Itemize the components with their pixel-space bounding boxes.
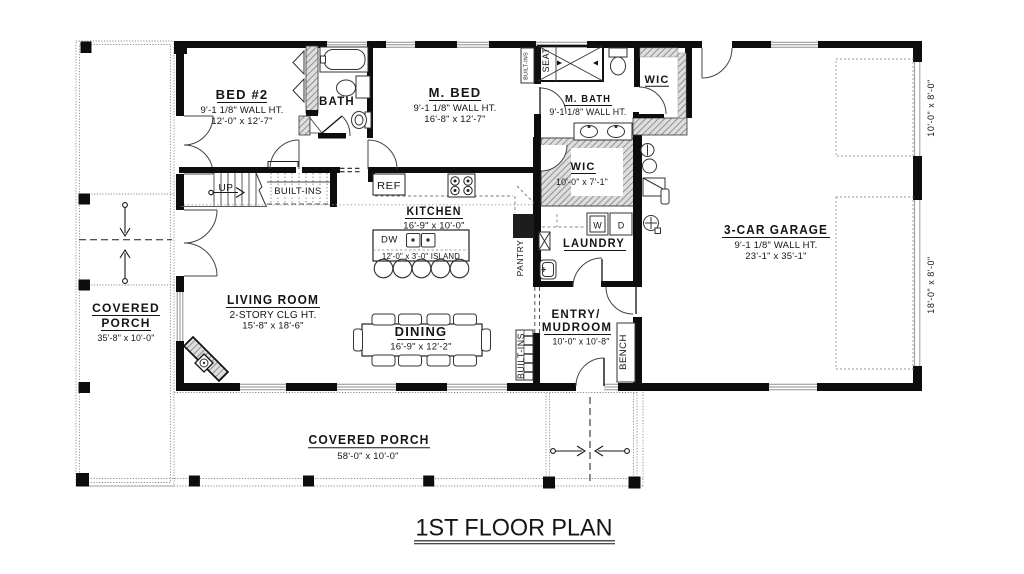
svg-text:18'-0" x 8'-0": 18'-0" x 8'-0" xyxy=(926,256,936,313)
svg-text:BUILT-INS: BUILT-INS xyxy=(274,186,321,197)
svg-text:SEAT: SEAT xyxy=(541,48,551,73)
svg-text:9'-1 1/8" WALL HT.: 9'-1 1/8" WALL HT. xyxy=(200,105,283,116)
svg-text:COVERED PORCH: COVERED PORCH xyxy=(309,432,430,447)
svg-text:KITCHEN: KITCHEN xyxy=(407,204,462,218)
svg-text:DW: DW xyxy=(381,235,398,246)
svg-text:LIVING ROOM: LIVING ROOM xyxy=(227,292,319,307)
svg-text:10'-0" x 8'-0": 10'-0" x 8'-0" xyxy=(926,79,936,136)
svg-text:10'-0" x 7'-1": 10'-0" x 7'-1" xyxy=(556,177,608,187)
svg-text:12'-0" x 3'-0" ISLAND: 12'-0" x 3'-0" ISLAND xyxy=(382,252,460,261)
svg-text:WIC: WIC xyxy=(645,74,670,86)
svg-text:WIC: WIC xyxy=(571,161,596,173)
svg-text:35'-8" x 10'-0": 35'-8" x 10'-0" xyxy=(97,333,154,343)
svg-text:9'-1 1/8" WALL HT.: 9'-1 1/8" WALL HT. xyxy=(549,107,626,117)
svg-text:D: D xyxy=(618,221,625,231)
svg-text:16'-8" x 12'-7": 16'-8" x 12'-7" xyxy=(424,114,485,125)
svg-text:23'-1" x 35'-1": 23'-1" x 35'-1" xyxy=(745,251,806,262)
svg-text:10'-0" x 10'-8": 10'-0" x 10'-8" xyxy=(552,337,609,347)
svg-text:DINING: DINING xyxy=(395,324,448,339)
svg-text:UP: UP xyxy=(219,183,234,194)
svg-text:16'-9" x 12'-2": 16'-9" x 12'-2" xyxy=(390,342,451,353)
svg-text:ENTRY/: ENTRY/ xyxy=(552,309,601,321)
svg-text:M. BED: M. BED xyxy=(429,85,482,100)
svg-text:MUDROOM: MUDROOM xyxy=(542,322,612,334)
svg-text:M. BATH: M. BATH xyxy=(565,93,611,105)
svg-text:LAUNDRY: LAUNDRY xyxy=(563,238,625,250)
svg-text:BED #2: BED #2 xyxy=(216,87,269,102)
svg-text:1ST FLOOR PLAN: 1ST FLOOR PLAN xyxy=(416,515,613,542)
svg-text:12'-0" x 12'-7": 12'-0" x 12'-7" xyxy=(211,116,272,127)
svg-text:9'-1 1/8" WALL HT.: 9'-1 1/8" WALL HT. xyxy=(413,103,496,114)
svg-text:PORCH: PORCH xyxy=(101,316,150,330)
svg-text:3-CAR GARAGE: 3-CAR GARAGE xyxy=(724,222,828,237)
svg-text:58'-0" x 10'-0": 58'-0" x 10'-0" xyxy=(337,451,398,462)
svg-text:COVERED: COVERED xyxy=(92,301,160,315)
svg-text:BUILT-INS: BUILT-INS xyxy=(516,333,526,379)
svg-text:2-STORY CLG HT.: 2-STORY CLG HT. xyxy=(230,310,317,321)
svg-text:BATH: BATH xyxy=(319,96,355,108)
svg-text:REF: REF xyxy=(377,181,401,192)
svg-text:9'-1 1/8" WALL HT.: 9'-1 1/8" WALL HT. xyxy=(734,240,817,251)
svg-text:BUILT-INS: BUILT-INS xyxy=(524,52,530,80)
svg-text:W: W xyxy=(593,221,602,231)
svg-text:15'-8" x 18'-6": 15'-8" x 18'-6" xyxy=(242,321,303,332)
svg-text:BENCH: BENCH xyxy=(618,334,629,370)
svg-text:PANTRY: PANTRY xyxy=(515,240,525,277)
svg-text:16'-9" x 10'-0": 16'-9" x 10'-0" xyxy=(403,221,464,232)
